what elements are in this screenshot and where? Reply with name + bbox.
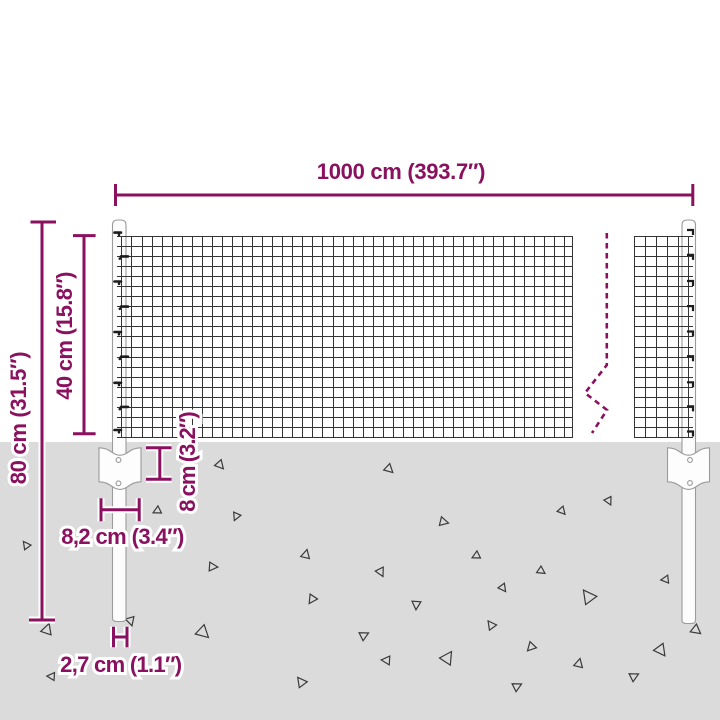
svg-text:8,2 cm (3.4″): 8,2 cm (3.4″) [61, 524, 184, 549]
svg-text:80 cm (31.5″): 80 cm (31.5″) [6, 352, 31, 485]
svg-text:8 cm (3.2″): 8 cm (3.2″) [175, 412, 200, 512]
svg-text:1000 cm (393.7″): 1000 cm (393.7″) [317, 159, 485, 184]
svg-text:2,7 cm (1.1″): 2,7 cm (1.1″) [60, 652, 182, 677]
svg-text:40 cm (15.8″): 40 cm (15.8″) [52, 272, 77, 400]
